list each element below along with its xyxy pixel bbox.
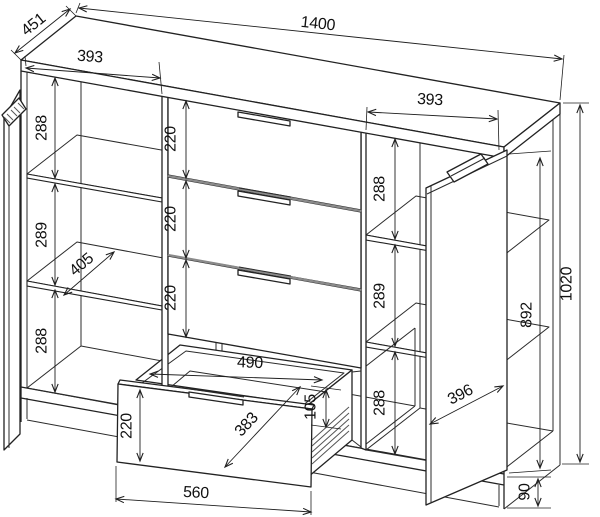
dim-overall-depth-label: 451 <box>18 10 49 40</box>
dim-left-opening-middle-label: 289 <box>34 222 51 248</box>
dim-plinth-height-label: 90 <box>517 483 534 501</box>
dim-right-opening-middle-label: 289 <box>372 283 389 309</box>
dim-overall-width-label: 1400 <box>300 14 336 35</box>
dim-open-drawer-front-height-label: 220 <box>119 413 136 439</box>
dim-left-opening-bottom-label: 288 <box>34 328 51 354</box>
dim-drawer-front-2-label: 220 <box>163 206 180 232</box>
dim-open-drawer-inner-height-label: 105 <box>303 394 320 420</box>
dim-open-drawer-inner-width-label: 490 <box>237 354 264 372</box>
left-door <box>2 90 26 450</box>
dim-plinth-height: 90 <box>507 477 551 508</box>
dim-right-opening-top-label: 288 <box>372 176 389 202</box>
dim-drawer-front-1-label: 220 <box>163 126 180 152</box>
dim-left-section-width-label: 393 <box>76 48 103 67</box>
dim-interior-height-label: 892 <box>519 302 536 328</box>
dim-open-drawer-front-width-label: 560 <box>183 484 210 502</box>
dim-shelf-depth: 405 <box>64 250 114 295</box>
cabinet-drawing: 451 1400 393 393 288 289 288 405 220 220 <box>0 0 600 517</box>
divider-right <box>361 132 366 450</box>
left-door-handle <box>2 98 26 126</box>
dim-shelf-depth-label: 405 <box>66 250 97 280</box>
dim-right-openings: 288 289 288 <box>372 139 395 454</box>
dim-overall-height: 1020 <box>559 103 589 464</box>
dim-left-openings: 288 289 288 <box>34 78 55 392</box>
dim-overall-height-label: 1020 <box>559 266 576 301</box>
right-door <box>426 150 507 505</box>
dim-left-opening-top-label: 288 <box>34 115 51 141</box>
furniture-dimension-drawing: 451 1400 393 393 288 289 288 405 220 220 <box>0 0 600 517</box>
dim-right-section-width-label: 393 <box>417 91 444 109</box>
dim-drawer-front-3-label: 220 <box>163 285 180 311</box>
dim-right-opening-bottom-label: 288 <box>372 390 389 416</box>
